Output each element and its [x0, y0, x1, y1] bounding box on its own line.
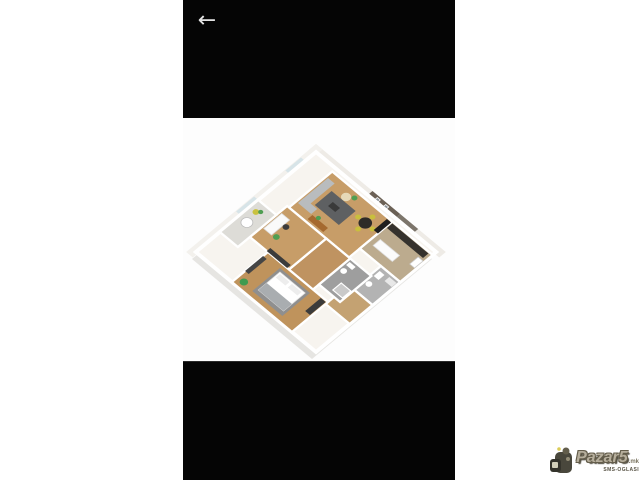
bottom-letterbox-bar	[183, 361, 455, 480]
floor-plan-image	[183, 118, 455, 361]
screenshot-canvas: ←	[0, 0, 640, 480]
phone-screenshot-region: ←	[183, 0, 455, 480]
watermark-tagline: SMS-OGLASI	[603, 468, 639, 473]
watermark-logo-icon	[549, 445, 575, 477]
back-arrow-icon: ←	[198, 8, 216, 33]
watermark-brand: Pazar5	[576, 450, 628, 466]
watermark-tld: .mk	[629, 459, 639, 465]
photo-viewer-area[interactable]	[183, 118, 455, 361]
floor-plan-isometric-group	[186, 144, 446, 360]
top-letterbox-bar: ←	[183, 0, 455, 119]
back-button[interactable]: ←	[193, 7, 221, 35]
site-watermark: Pazar5 .mk SMS-OGLASI	[549, 445, 639, 477]
watermark-text-block: Pazar5 .mk SMS-OGLASI	[576, 450, 639, 473]
